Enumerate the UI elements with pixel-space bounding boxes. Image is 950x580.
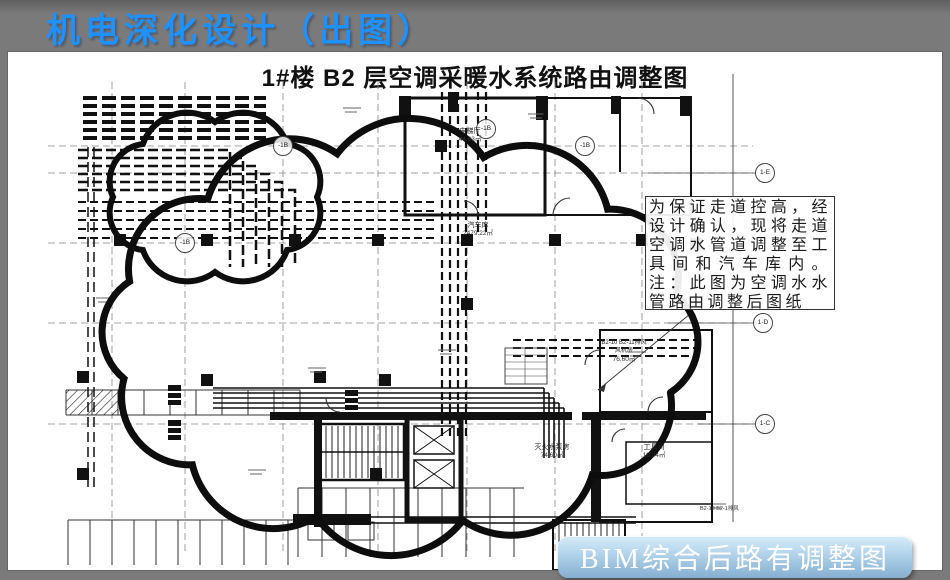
room-name: 灭火水泵房 [500, 443, 604, 452]
room-name: 工具间 [612, 443, 696, 452]
grid-bubble: -1B [273, 136, 293, 156]
slide-title: 机电深化设计（出图） [46, 3, 436, 52]
room-name: B2-10 B2-11排风 [578, 340, 670, 348]
room-area: 74.60㎡ [500, 452, 604, 460]
grid-bubble: 1-C [755, 414, 775, 434]
room-name: 风机房 [578, 348, 670, 356]
grid-bubble: -1B [175, 233, 195, 253]
caption-text: BIM综合后路有调整图 [580, 537, 890, 577]
room-area: 44.63㎡ [430, 136, 510, 144]
room-area: 2479.22㎡ [428, 230, 528, 238]
room-label-garage: 汽车库 2479.22㎡ [428, 221, 528, 239]
room-name: 汽车库 [428, 221, 528, 230]
room-label-exhaust: B2-18 B2-1排风 [700, 504, 739, 512]
revision-cloud-main [102, 118, 698, 555]
grid-bubble: 1-E [755, 163, 775, 183]
pipe-schedule-table [505, 348, 547, 384]
caption-badge: BIM综合后路有调整图 [558, 536, 912, 578]
elevator-core [407, 418, 461, 520]
presentation-slide: { "slide": { "title": "机电深化设计（出图）" }, "d… [0, 0, 950, 580]
room-label-pump-room: 灭火水泵房 74.60㎡ [500, 443, 604, 461]
room-name: 电梯厅 [430, 127, 510, 136]
room-label-fan-room: B2-10 B2-11排风 风机房 76.60㎡ [578, 340, 670, 364]
room-area: 19.04㎡ [612, 452, 696, 460]
grid-bubble: 1-D [753, 313, 773, 333]
room-area: 76.60㎡ [578, 356, 670, 364]
grid-bubble: -1B [575, 136, 595, 156]
room-label-elevator-hall: 电梯厅 44.63㎡ [430, 127, 510, 145]
annotation-note: 为保证走道控高，经设计确认，现将走道空调水管道调整至工具间和汽车库内。注：此图为… [645, 196, 835, 310]
room-label-tool-room: 工具间 19.04㎡ [612, 443, 696, 461]
